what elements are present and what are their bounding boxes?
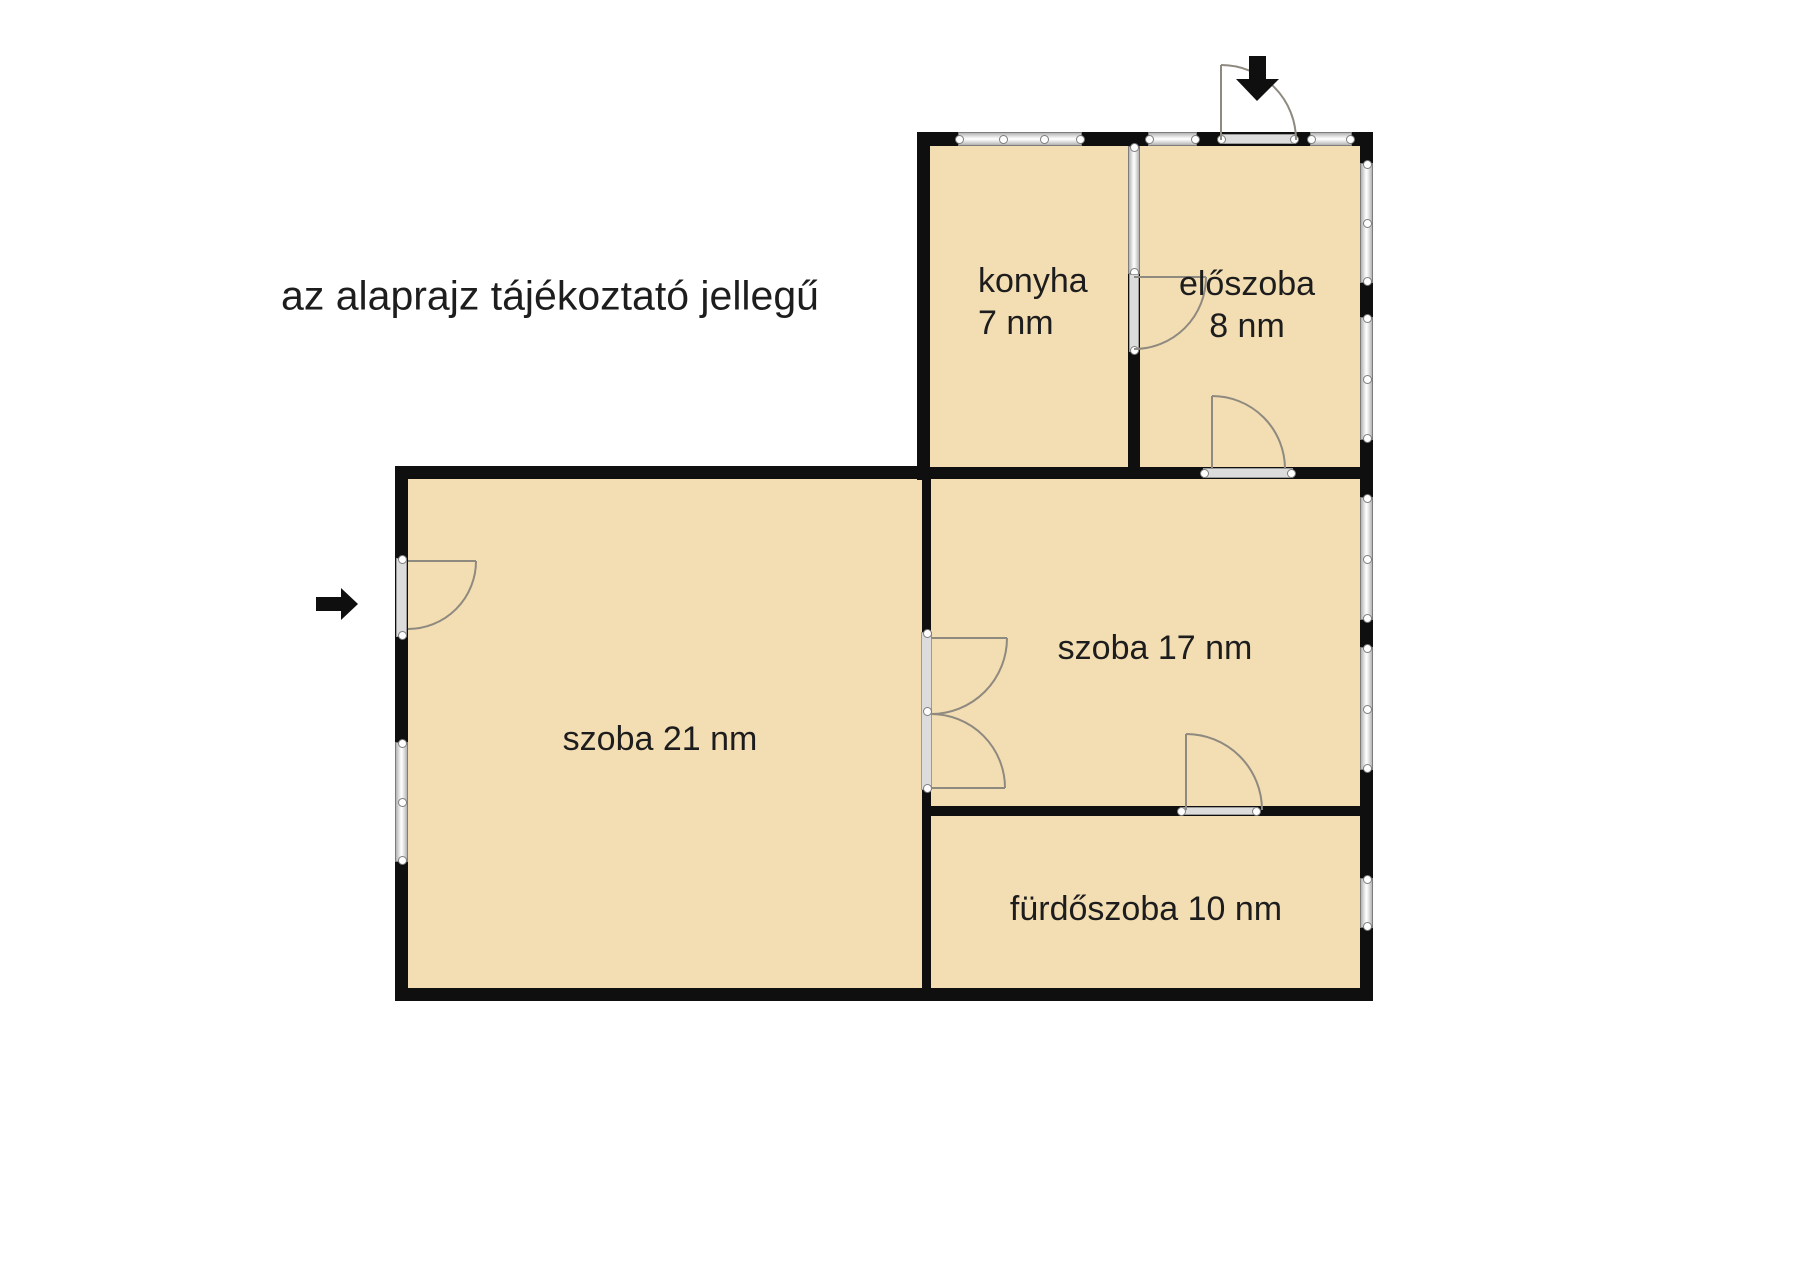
eloszoba-door-arc bbox=[1212, 396, 1285, 469]
plan-disclaimer-note: az alaprajz tájékoztató jellegű bbox=[281, 273, 819, 320]
room-label-eloszoba-name: előszoba bbox=[1179, 263, 1315, 305]
room-label-eloszoba: előszoba 8 nm bbox=[1179, 263, 1315, 347]
door-and-arrow-overlay bbox=[0, 0, 1809, 1280]
room-label-furdoszoba: fürdőszoba 10 nm bbox=[1010, 888, 1282, 930]
double-door-lower-arc bbox=[931, 714, 1005, 788]
room-label-szoba21: szoba 21 nm bbox=[563, 718, 758, 760]
floor-plan: az alaprajz tájékoztató jellegű konyha 7… bbox=[0, 0, 1809, 1280]
entrance-arrow-right-icon bbox=[316, 588, 358, 620]
entrance-arrow-down-icon bbox=[1236, 56, 1279, 101]
room-label-eloszoba-area: 8 nm bbox=[1179, 305, 1315, 347]
double-door-upper-arc bbox=[931, 638, 1007, 714]
szoba21-door-arc bbox=[408, 561, 476, 629]
room-label-konyha-name: konyha bbox=[978, 260, 1088, 302]
room-label-konyha: konyha 7 nm bbox=[978, 260, 1088, 344]
room-label-szoba17: szoba 17 nm bbox=[1058, 627, 1253, 669]
furdoszoba-door-arc bbox=[1186, 734, 1262, 810]
room-label-konyha-area: 7 nm bbox=[978, 302, 1088, 344]
